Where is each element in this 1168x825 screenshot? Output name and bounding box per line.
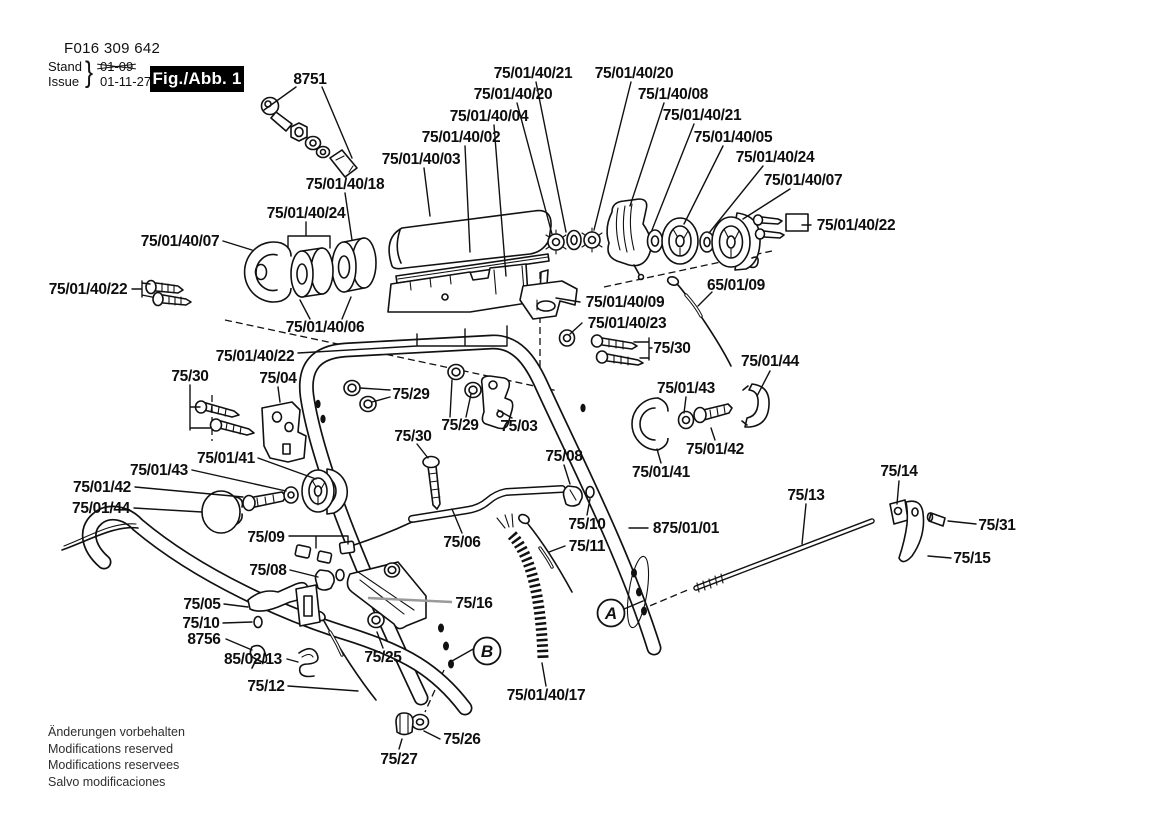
part-label-75-01-40-24: 75/01/40/24 <box>736 149 815 166</box>
capnut-75-27 <box>396 713 413 735</box>
left-roller-group <box>245 238 376 302</box>
part-label-75-01-40-22: 75/01/40/22 <box>817 217 896 234</box>
part-label-75-01-41: 75/01/41 <box>632 464 691 481</box>
parts-catalog-page: F016 309 642 Stand Issue } 01-09 01-11-2… <box>0 0 1168 825</box>
part-label-75-26: 75/26 <box>443 731 481 748</box>
right-screw-pair-and-sleeve <box>754 214 809 239</box>
part-label-75-01-40-21: 75/01/40/21 <box>663 107 742 124</box>
cable-75-11 <box>517 513 572 592</box>
part-label-75-01-40-02: 75/01/40/02 <box>422 129 501 146</box>
pin-75-31 <box>928 513 946 526</box>
left-bolt-pair-75-30 <box>196 401 255 435</box>
part-label-75-01-40-04: 75/01/40/04 <box>450 108 529 125</box>
rod-75-13 <box>696 521 872 592</box>
bracket-75-16 <box>347 562 426 629</box>
svg-text:B: B <box>481 642 493 661</box>
part-label-75-29: 75/29 <box>441 417 479 434</box>
part-label-8751: 8751 <box>293 71 327 88</box>
part-label-75-1-40-08: 75/1/40/08 <box>638 86 709 103</box>
part-label-75-04: 75/04 <box>259 370 297 387</box>
part-label-75-09: 75/09 <box>247 529 285 546</box>
footer-line-de: Änderungen vorbehalten <box>48 724 185 741</box>
lever-75-05 <box>248 583 320 628</box>
right-roller-group <box>546 199 760 280</box>
footer-line-en: Modifications reserved <box>48 741 185 758</box>
tube-mounting-holes <box>315 400 647 669</box>
part-label-75-01-43: 75/01/43 <box>657 380 716 397</box>
part-label-75-01-40-20: 75/01/40/20 <box>595 65 674 82</box>
part-label-75-30: 75/30 <box>653 340 690 357</box>
washer-75-26 <box>412 715 429 730</box>
part-label-75-01-42: 75/01/42 <box>686 441 744 458</box>
part-label-75-01-40-22: 75/01/40/22 <box>216 348 295 365</box>
part-label-75-01-40-18: 75/01/40/18 <box>306 176 385 193</box>
part-label-75-13: 75/13 <box>787 487 825 504</box>
part-label-875-01-01: 875/01/01 <box>653 520 720 537</box>
part-label-75-11: 75/11 <box>569 538 606 555</box>
part-label-75-01-40-17: 75/01/40/17 <box>507 687 586 704</box>
part-labels-layer: 875175/01/40/2175/01/40/2075/01/40/2075/… <box>49 65 1017 768</box>
part-label-75-16: 75/16 <box>455 595 493 612</box>
part-label-75-01-40-07: 75/01/40/07 <box>764 172 843 189</box>
clamp-75-08-left <box>316 570 345 591</box>
part-label-75-01-40-03: 75/01/40/03 <box>382 151 461 168</box>
part-label-75-03: 75/03 <box>500 418 538 435</box>
part-label-75-01-44: 75/01/44 <box>741 353 800 370</box>
part-label-75-30: 75/30 <box>394 428 431 445</box>
part-label-75-15: 75/15 <box>953 550 991 567</box>
part-label-75-06: 75/06 <box>443 534 481 551</box>
part-label-65-01-09: 65/01/09 <box>707 277 766 294</box>
part-label-75-08: 75/08 <box>545 448 583 465</box>
part-label-75-01-40-23: 75/01/40/23 <box>588 315 667 332</box>
legal-footer: Änderungen vorbehalten Modifications res… <box>48 724 185 790</box>
exploded-parts-diagram: 875175/01/40/2175/01/40/2075/01/40/2075/… <box>0 0 1168 825</box>
part-label-75-10: 75/10 <box>568 516 605 533</box>
part-label-75-01-40-06: 75/01/40/06 <box>286 319 365 336</box>
part-label-75-01-40-22: 75/01/40/22 <box>49 281 128 298</box>
callout-A: A <box>598 600 625 627</box>
svg-text:A: A <box>604 604 617 623</box>
part-label-85-02-13: 85/02/13 <box>224 651 283 668</box>
bolt-75-30-center <box>423 457 440 510</box>
part-label-75-29: 75/29 <box>392 386 430 403</box>
right-bolt-pair <box>592 335 644 365</box>
wavy-link-75-06 <box>412 489 562 519</box>
part-label-75-25: 75/25 <box>364 649 402 666</box>
left-screw-pair <box>146 281 191 306</box>
footer-line-fr: Modifications reservees <box>48 757 185 774</box>
footer-line-es: Salvo modificaciones <box>48 774 185 791</box>
part-label-75-01-40-07: 75/01/40/07 <box>141 233 220 250</box>
part-label-75-01-43: 75/01/43 <box>130 462 189 479</box>
part-label-75-31: 75/31 <box>978 517 1016 534</box>
part-label-75-08: 75/08 <box>249 562 287 579</box>
part-label-75-10: 75/10 <box>182 615 219 632</box>
left-clamp-group <box>202 469 347 533</box>
part-label-75-01-40-24: 75/01/40/24 <box>267 205 346 222</box>
callout-B: B <box>474 638 501 665</box>
part-label-75-30: 75/30 <box>171 368 208 385</box>
part-label-75-01-41: 75/01/41 <box>197 450 256 467</box>
part-label-75-01-40-21: 75/01/40/21 <box>494 65 573 82</box>
part-label-75-01-42: 75/01/42 <box>73 479 131 496</box>
cable-bracket-group <box>520 281 577 346</box>
part-label-75-01-40-20: 75/01/40/20 <box>474 86 553 103</box>
part-label-75-14: 75/14 <box>880 463 918 480</box>
clip-85-02-13 <box>299 649 318 677</box>
part-label-75-05: 75/05 <box>183 596 221 613</box>
part-label-75-27: 75/27 <box>380 751 417 768</box>
part-label-75-01-40-09: 75/01/40/09 <box>586 294 665 311</box>
bracket-75-04 <box>262 402 306 462</box>
part-label-8756: 8756 <box>187 631 221 648</box>
part-label-75-01-44: 75/01/44 <box>72 500 131 517</box>
trigger-75-14 <box>890 500 924 562</box>
part-label-75-01-40-05: 75/01/40/05 <box>694 129 773 146</box>
part-label-75-12: 75/12 <box>247 678 284 695</box>
